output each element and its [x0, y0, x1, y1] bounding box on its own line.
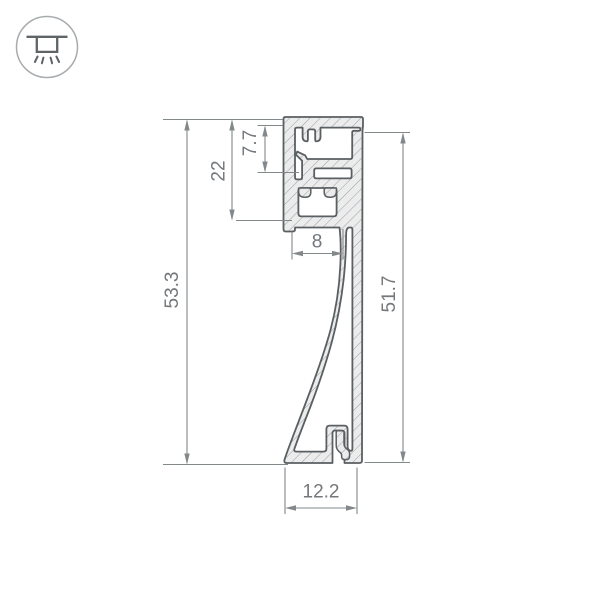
profile-cross-section-drawing: 53.3 22 7.7 8 51.7: [0, 0, 600, 600]
dimension-base-width: 12.2: [285, 468, 357, 515]
profile-outline: [284, 117, 364, 463]
dimension-back-wall-height: 51.7: [365, 133, 411, 463]
dimension-led-channel-width: 8: [292, 229, 343, 260]
dimension-label-led-channel-width: 8: [312, 232, 323, 253]
dimension-label-cover-recess-depth: 7.7: [240, 130, 261, 156]
dimension-label-total-height: 53.3: [162, 272, 183, 309]
dimension-label-back-wall-height: 51.7: [379, 276, 400, 313]
profile-section: [284, 117, 364, 463]
dimension-label-base-width: 12.2: [303, 482, 340, 503]
recessed-profile-light-icon: [17, 17, 78, 78]
channel-lip-left: [299, 188, 311, 197]
channel-lip-right: [324, 188, 336, 197]
dimension-label-top-box-depth: 22: [209, 160, 230, 181]
profile-technical-drawing-page: 53.3 22 7.7 8 51.7: [0, 0, 600, 600]
icon-circle: [17, 17, 78, 78]
